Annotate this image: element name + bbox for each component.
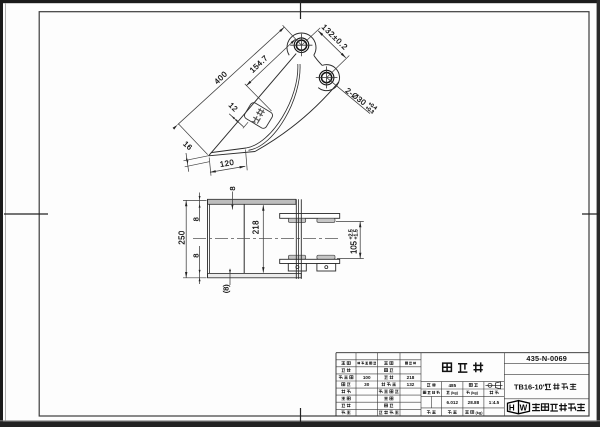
svg-text:100: 100 <box>363 375 371 380</box>
svg-text:485: 485 <box>448 383 456 388</box>
svg-text:250: 250 <box>177 230 186 244</box>
svg-text:218: 218 <box>252 220 261 234</box>
svg-text:28.88: 28.88 <box>468 400 480 405</box>
svg-text:(8): (8) <box>222 284 231 293</box>
svg-text:8: 8 <box>192 253 201 257</box>
svg-text:(kg): (kg) <box>471 391 479 395</box>
svg-text:6.012: 6.012 <box>447 400 459 405</box>
svg-text:+1.5: +1.5 <box>354 229 360 239</box>
svg-text:(kg): (kg) <box>451 391 459 395</box>
svg-text:8: 8 <box>192 217 201 221</box>
svg-text:W: W <box>520 404 528 413</box>
svg-text:(kg): (kg) <box>476 411 484 415</box>
svg-text:H: H <box>509 404 515 413</box>
svg-text:132: 132 <box>407 382 415 387</box>
svg-text:105: 105 <box>350 240 359 254</box>
svg-text:30: 30 <box>364 382 370 387</box>
svg-text:8: 8 <box>228 186 237 190</box>
svg-text:435-N-0069: 435-N-0069 <box>526 354 567 363</box>
svg-text:TB16-10″: TB16-10″ <box>514 382 547 391</box>
svg-text:218: 218 <box>407 375 415 380</box>
svg-text:1:4.5: 1:4.5 <box>489 400 500 405</box>
